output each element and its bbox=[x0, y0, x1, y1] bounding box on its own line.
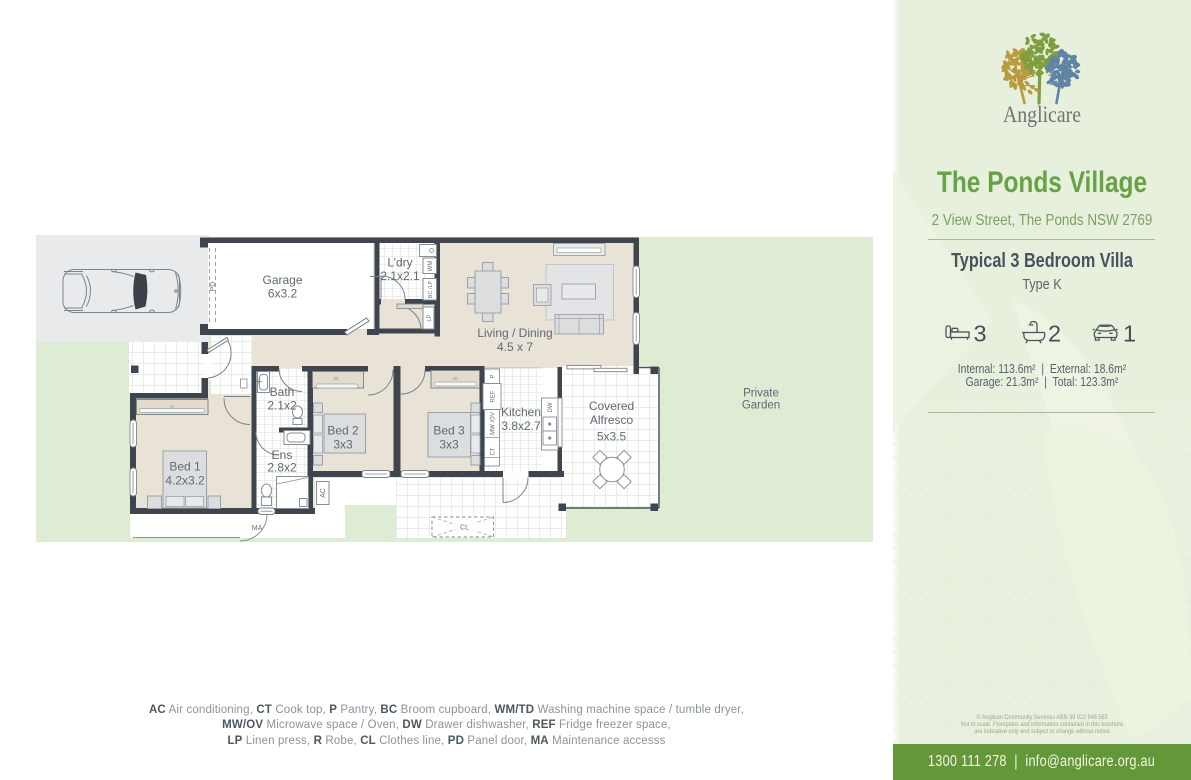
svg-text:2: 2 bbox=[1048, 321, 1061, 347]
svg-text:Bed 1: Bed 1 bbox=[169, 460, 201, 474]
svg-text:Alfresco: Alfresco bbox=[590, 413, 634, 427]
svg-text:BC /LP: BC /LP bbox=[428, 280, 434, 298]
svg-text:LP: LP bbox=[427, 314, 433, 321]
svg-text:CL: CL bbox=[460, 525, 469, 532]
svg-text:30: 30 bbox=[333, 376, 339, 381]
svg-text:MA: MA bbox=[252, 525, 263, 532]
svg-text:AC: AC bbox=[320, 488, 327, 498]
svg-text:5x3.5: 5x3.5 bbox=[597, 430, 627, 444]
svg-text:Bed 3: Bed 3 bbox=[433, 424, 465, 438]
svg-text:3: 3 bbox=[974, 321, 987, 347]
svg-text:3x3: 3x3 bbox=[333, 438, 353, 452]
svg-text:PD: PD bbox=[210, 282, 217, 292]
svg-text:3x3: 3x3 bbox=[439, 438, 459, 452]
svg-text:2.1x2: 2.1x2 bbox=[267, 399, 297, 413]
svg-text:CT: CT bbox=[491, 447, 497, 455]
svg-text:Bed 2: Bed 2 bbox=[327, 424, 359, 438]
svg-text:L’dry: L’dry bbox=[387, 256, 412, 270]
svg-text:30: 30 bbox=[169, 405, 175, 410]
svg-text:Covered: Covered bbox=[589, 399, 634, 413]
svg-text:2.8x2: 2.8x2 bbox=[267, 461, 297, 475]
svg-text:1: 1 bbox=[1123, 321, 1136, 347]
svg-text:MW /OV: MW /OV bbox=[491, 412, 497, 435]
svg-text:DW: DW bbox=[548, 402, 554, 412]
svg-text:REF: REF bbox=[491, 390, 497, 402]
svg-text:Private: Private bbox=[743, 388, 779, 400]
svg-text:30: 30 bbox=[452, 376, 458, 381]
svg-text:Garage: Garage bbox=[262, 273, 302, 287]
svg-text:Garden: Garden bbox=[742, 400, 780, 412]
svg-text:WM: WM bbox=[428, 261, 434, 272]
svg-text:4.2x3.2: 4.2x3.2 bbox=[165, 474, 205, 488]
svg-text:4.5 x 7: 4.5 x 7 bbox=[497, 340, 533, 354]
svg-text:6x3.2: 6x3.2 bbox=[268, 287, 298, 301]
svg-text:Kitchen: Kitchen bbox=[501, 405, 541, 419]
svg-text:3.8x2.7: 3.8x2.7 bbox=[501, 419, 541, 433]
svg-text:2.1x2.1: 2.1x2.1 bbox=[380, 269, 420, 283]
svg-text:P: P bbox=[491, 374, 497, 378]
svg-text:Bath: Bath bbox=[270, 385, 295, 399]
svg-text:Living / Dining: Living / Dining bbox=[477, 326, 552, 340]
